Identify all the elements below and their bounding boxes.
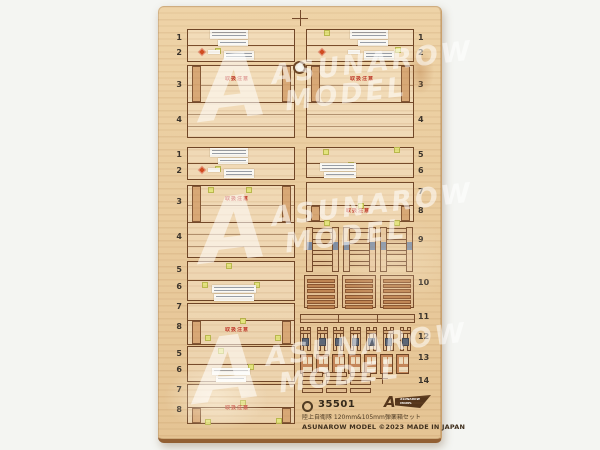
part-number-left: 1: [168, 33, 182, 43]
clamp-buckle: [302, 338, 309, 346]
micro-label: [208, 50, 220, 54]
attachment-tab: [208, 187, 214, 193]
latch-cutout: [308, 357, 312, 364]
part-number-right: 10: [418, 278, 429, 288]
block-slat: [345, 289, 373, 293]
spec-label: [224, 169, 254, 178]
part-number-left: 4: [168, 115, 182, 125]
part-number-right: 3: [418, 80, 424, 90]
part-number-left: 7: [168, 385, 182, 395]
part-number-right: 4: [418, 115, 424, 125]
part-latch-13: [300, 354, 313, 374]
rail-label: [333, 242, 338, 250]
block-slat: [383, 279, 411, 283]
rail-label: [407, 242, 412, 250]
rail-label: [344, 242, 349, 250]
part-number-right: 5: [418, 150, 424, 160]
part-slat-block-10: [304, 275, 338, 308]
part-number-left: 2: [168, 48, 182, 58]
logo-line2: MODEL: [400, 401, 431, 405]
attachment-tab: [324, 220, 330, 226]
part-slat-block-10: [380, 275, 414, 308]
part-clamp-12: [333, 327, 344, 351]
part-number-left: 7: [168, 302, 182, 312]
part-box-7-8-right: [306, 182, 414, 222]
block-slat: [345, 300, 373, 304]
plank-seam: [188, 246, 294, 247]
attachment-tab: [395, 47, 401, 53]
plank-seam: [188, 85, 294, 86]
latch-cutout: [319, 357, 323, 364]
part-latch-13: [348, 354, 361, 374]
spec-label: [210, 30, 248, 39]
rail-label: [370, 242, 375, 250]
end-batten: [282, 66, 291, 102]
part-latch-13: [316, 354, 329, 374]
block-slat: [307, 295, 335, 299]
cut-line: [188, 280, 294, 281]
clamp-buckle: [385, 338, 392, 346]
stack-slat: [350, 372, 371, 377]
latch-cutout: [399, 357, 403, 364]
plank-seam: [188, 114, 294, 115]
part-latch-13: [396, 354, 409, 374]
clamp-buckle: [319, 338, 326, 346]
latch-cutout: [303, 357, 307, 364]
block-slat: [345, 295, 373, 299]
stack-slat: [302, 380, 323, 385]
attachment-tab: [240, 318, 246, 324]
latch-cutout: [404, 357, 408, 364]
attachment-tab: [276, 418, 282, 424]
attachment-tab: [202, 282, 208, 288]
part-number-left: 3: [168, 197, 182, 207]
part-number-right: 14: [418, 376, 429, 386]
part-number-left: 6: [168, 282, 182, 292]
clamp-bar: [366, 330, 377, 334]
caution-stencil: 取扱注意: [220, 76, 254, 82]
clamp-bar: [350, 330, 361, 334]
clamp-bar: [383, 330, 394, 334]
part-slat-stack-14: [302, 372, 323, 394]
part-number-right: 6: [418, 166, 424, 176]
end-batten: [192, 186, 201, 222]
part-latch-13: [380, 354, 393, 374]
end-batten: [192, 408, 201, 423]
part-number-right: 8: [418, 206, 424, 216]
clamp-buckle: [402, 338, 409, 346]
latch-cutout: [324, 357, 328, 364]
logo-wing: ASUNAROW MODEL: [395, 395, 431, 408]
attachment-tab: [226, 263, 232, 269]
part-number-left: 5: [168, 349, 182, 359]
product-title-jp: 陸上自衛隊 120mm&105mm弾薬箱セット: [302, 414, 442, 421]
plank-seam: [301, 319, 414, 320]
part-number-left: 1: [168, 150, 182, 160]
part-clamp-12: [300, 327, 311, 351]
asunarow-logo-badge: A ASUNAROW MODEL: [384, 393, 432, 413]
part-slat-block-10: [342, 275, 376, 308]
rail-label: [381, 242, 386, 250]
plank-seam: [307, 114, 413, 115]
part-number-right: 11: [418, 312, 429, 322]
part-number-left: 6: [168, 365, 182, 375]
credit-line: ASUNAROW MODEL ©2023 MADE IN JAPAN: [302, 423, 465, 431]
part-latch-13: [332, 354, 345, 374]
part-number-left: 2: [168, 166, 182, 176]
spec-label: [216, 376, 246, 382]
block-slat: [383, 305, 411, 309]
plank-seam: [188, 205, 294, 206]
part-number-right: 2: [418, 48, 424, 58]
part-clamp-12: [350, 327, 361, 351]
spec-label: [212, 285, 256, 293]
attachment-tab: [275, 335, 281, 341]
stack-slat: [326, 380, 347, 385]
part-number-left: 4: [168, 232, 182, 242]
block-slat: [307, 289, 335, 293]
caution-stencil: 取扱注意: [220, 405, 254, 411]
cut-line: [307, 102, 413, 103]
part-ladder-9: [343, 227, 376, 272]
spec-label: [218, 40, 248, 46]
clamp-bar: [400, 330, 411, 334]
attachment-tab: [394, 220, 400, 226]
clamp-buckle: [335, 338, 342, 346]
plank-seam: [188, 234, 294, 235]
part-clamp-12: [383, 327, 394, 351]
cut-line: [188, 364, 294, 365]
spec-label: [358, 40, 388, 46]
latch-cutout: [351, 357, 355, 364]
part-number-right: 7: [418, 187, 424, 197]
part-slat-stack-14: [350, 372, 371, 394]
end-batten: [192, 66, 201, 102]
block-slat: [383, 300, 411, 304]
end-batten: [192, 321, 201, 344]
micro-label: [208, 168, 220, 172]
part-number-left: 5: [168, 265, 182, 275]
spec-label: [320, 163, 356, 171]
block-slat: [307, 300, 335, 304]
registration-cross-top: [292, 10, 308, 26]
block-slat: [383, 284, 411, 288]
part-number-right: 13: [418, 353, 429, 363]
latch-cutout: [383, 357, 387, 364]
spec-label: [214, 294, 254, 301]
latch-cutout: [367, 357, 371, 364]
part-number-left: 8: [168, 405, 182, 415]
attachment-tab: [205, 335, 211, 341]
caution-stencil: 取扱注意: [341, 208, 375, 214]
latch-cutout: [372, 357, 376, 364]
block-slat: [307, 284, 335, 288]
spec-label: [324, 172, 356, 178]
block-slat: [345, 284, 373, 288]
plank-seam: [307, 126, 413, 127]
attachment-tab: [205, 419, 211, 425]
part-number-left: 3: [168, 80, 182, 90]
micro-label: [348, 50, 360, 54]
end-batten: [282, 186, 291, 222]
clamp-buckle: [352, 338, 359, 346]
part-latch-13: [364, 354, 377, 374]
part-number-right: 1: [418, 33, 424, 43]
part-number-right: 9: [418, 235, 424, 245]
latch-cutout: [335, 357, 339, 364]
attachment-tab: [323, 149, 329, 155]
block-slat: [307, 279, 335, 283]
laser-cut-parts-sheet: A ASUNAROWMODEL A ASUNAROWMODEL A ASUNAR…: [158, 6, 442, 443]
clamp-buckle: [368, 338, 375, 346]
end-batten: [311, 66, 320, 102]
end-batten: [282, 321, 291, 344]
part-clamp-12: [317, 327, 328, 351]
part-ladder-9: [380, 227, 413, 272]
latch-cutout: [340, 357, 344, 364]
stack-slat: [350, 380, 371, 385]
plank-seam: [307, 85, 413, 86]
part-slat-stack-14: [326, 372, 347, 394]
block-slat: [383, 295, 411, 299]
spec-label: [364, 51, 394, 60]
caution-stencil: 取扱注意: [345, 76, 379, 82]
clamp-bar: [300, 330, 311, 334]
stack-slat: [326, 388, 347, 393]
part-clamp-12: [400, 327, 411, 351]
spec-label: [350, 30, 388, 39]
clamp-bar: [333, 330, 344, 334]
logo-letter-a: A: [384, 393, 396, 411]
caution-stencil: 取扱注意: [220, 196, 254, 202]
block-slat: [383, 289, 411, 293]
rail-label: [307, 242, 312, 250]
part-number-right: 12: [418, 332, 429, 342]
print-circle-mark: [302, 401, 313, 412]
latch-cutout: [388, 357, 392, 364]
part-clamp-12: [366, 327, 377, 351]
cut-line: [188, 102, 294, 103]
block-slat: [307, 305, 335, 309]
spec-label: [218, 158, 248, 164]
block-slat: [345, 279, 373, 283]
latch-cutout: [383, 367, 392, 372]
latch-cutout: [399, 367, 408, 372]
caution-stencil: 取扱注意: [220, 327, 254, 333]
stack-slat: [350, 388, 371, 393]
attachment-tab: [246, 187, 252, 193]
attachment-tab: [324, 30, 330, 36]
clamp-bar: [317, 330, 328, 334]
spec-label: [224, 51, 254, 60]
end-batten: [282, 408, 291, 423]
attachment-tab: [218, 348, 224, 354]
cut-line: [188, 222, 294, 223]
stack-slat: [302, 388, 323, 393]
end-batten: [401, 66, 410, 102]
drill-hole: [293, 61, 306, 74]
spec-label: [210, 148, 248, 157]
end-batten: [311, 206, 320, 221]
plank-seam: [188, 126, 294, 127]
product-photo: A ASUNAROWMODEL A ASUNAROWMODEL A ASUNAR…: [0, 0, 600, 450]
part-ladder-9: [306, 227, 339, 272]
part-number-left: 8: [168, 322, 182, 332]
end-batten: [401, 206, 410, 221]
spec-label: [212, 368, 250, 375]
item-number: 35501: [318, 399, 355, 410]
attachment-tab: [394, 147, 400, 153]
stack-slat: [302, 372, 323, 377]
stack-slat: [326, 372, 347, 377]
part-strip-11: [300, 314, 415, 323]
latch-cutout: [356, 357, 360, 364]
block-slat: [345, 305, 373, 309]
